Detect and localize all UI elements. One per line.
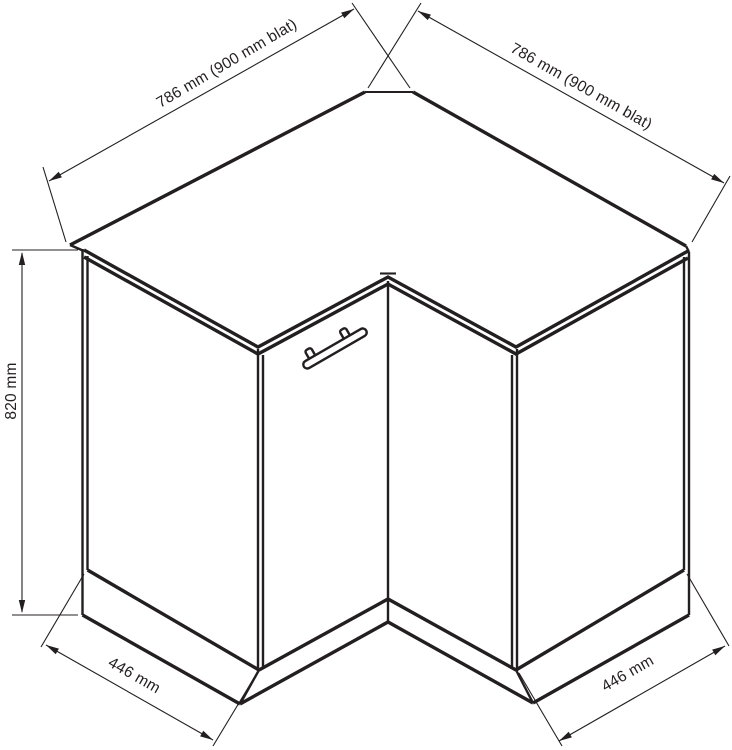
arrowhead (19, 252, 25, 265)
dimension-line (418, 11, 724, 183)
extension-line (368, 3, 421, 88)
arrowhead (200, 731, 214, 743)
countertop-back-left-edge (70, 92, 365, 245)
extension-line (687, 574, 729, 646)
left-side-panel (83, 249, 260, 704)
dimension-bottom-right: 446 mm (519, 574, 729, 746)
dimension-line (49, 9, 354, 181)
drawing-canvas: 786 mm (900 mm blat) 786 mm (900 mm blat… (0, 0, 732, 750)
arrowhead (711, 174, 725, 186)
right-side-panel (516, 252, 689, 703)
plinth (240, 599, 533, 704)
dimension-top-right: 786 mm (900 mm blat) (368, 3, 730, 242)
arrowhead (416, 8, 430, 20)
arrowhead (47, 172, 61, 184)
countertop (70, 92, 689, 354)
left-floor-edge (83, 615, 241, 704)
dimension-bottom-left: 446 mm (41, 574, 257, 746)
dimension-height: 820 mm (3, 250, 78, 615)
countertop-front-top-arris (84, 250, 688, 347)
extension-line (213, 673, 257, 746)
right-front-bottom-rail-edge (516, 570, 684, 670)
cabinet-diagram: 786 mm (900 mm blat) 786 mm (900 mm blat… (0, 0, 732, 750)
extension-line (519, 673, 562, 746)
dimension-label-top-right: 786 mm (900 mm blat) (507, 40, 655, 134)
cabinet-drawing (70, 92, 689, 704)
extension-line (692, 176, 730, 242)
countertop-front-bottom-arris (84, 257, 688, 354)
arrowhead (712, 643, 726, 655)
dimension-label-bottom-right: 446 mm (599, 652, 657, 695)
dimension-label-height: 820 mm (3, 362, 20, 419)
plinth-bottom-edges (240, 622, 533, 704)
dimension-label-bottom-left: 446 mm (105, 654, 163, 697)
dimension-line (46, 645, 213, 740)
extension-line (352, 3, 410, 88)
dimension-top-left: 786 mm (900 mm blat) (43, 3, 410, 242)
dimension-label-top-left: 786 mm (900 mm blat) (154, 16, 300, 112)
arrowhead (341, 6, 355, 18)
arrowhead (44, 642, 58, 654)
extension-line (41, 574, 84, 647)
arrowhead (19, 600, 25, 613)
